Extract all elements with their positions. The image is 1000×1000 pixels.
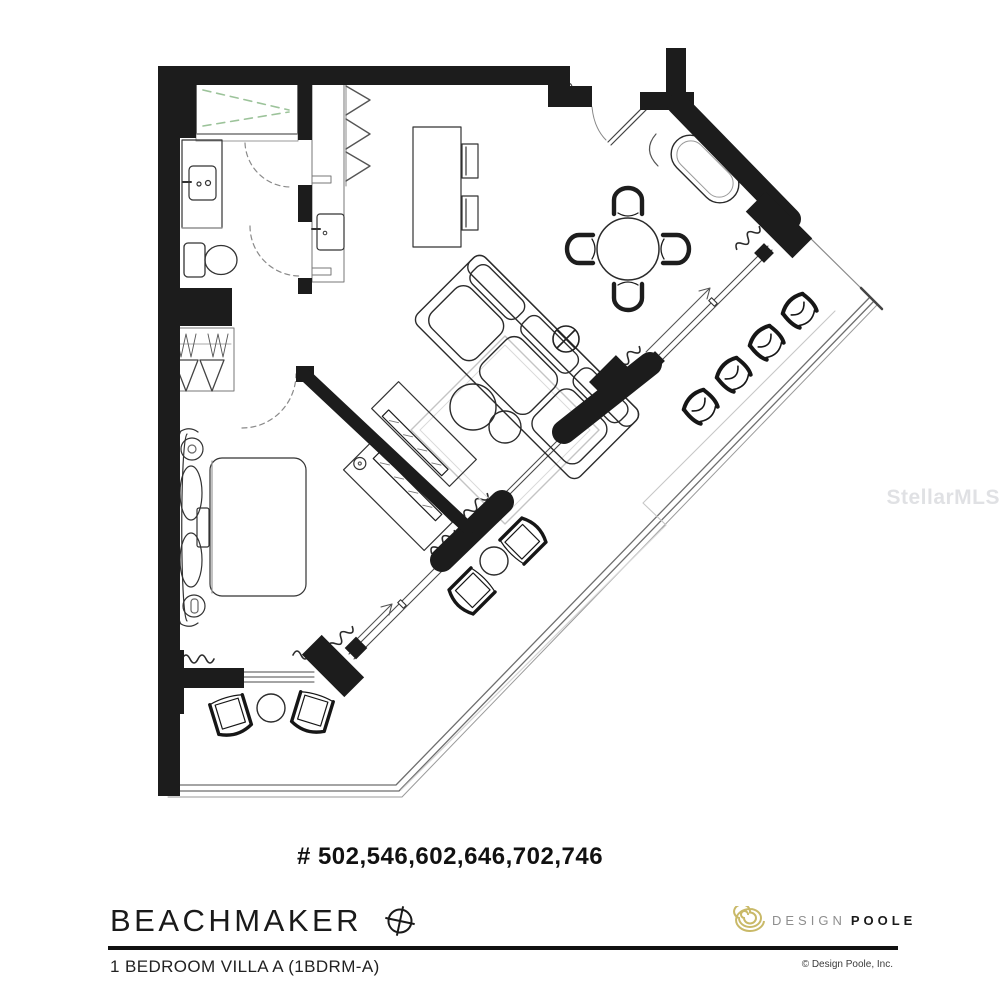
copyright-text: © Design Poole, Inc. xyxy=(802,959,893,970)
north-arrow-icon xyxy=(382,903,418,939)
door-swing-arcs xyxy=(242,143,300,428)
lower-balcony-seating xyxy=(209,690,334,739)
unit-type-label: 1 BEDROOM VILLA A (1BDRM-A) xyxy=(110,957,380,977)
designpoole-logo: DESIGNPOOLE xyxy=(733,906,916,934)
kitchen-island xyxy=(413,127,478,247)
ceiling-light-symbol xyxy=(553,326,579,352)
logo-text-poole: POOLE xyxy=(851,913,917,928)
floor-plan-sheet: # 502,546,602,646,702,746 BEACHMAKER 1 B… xyxy=(0,0,1000,1000)
bench-throw-line xyxy=(649,134,658,166)
unit-numbers: # 502,546,602,646,702,746 xyxy=(250,843,650,871)
dining-set xyxy=(567,188,689,310)
logo-text-design: DESIGN xyxy=(772,913,846,928)
balcony-railing xyxy=(168,227,882,797)
balcony-lounge-chairs xyxy=(680,290,820,427)
toilet xyxy=(184,243,237,277)
building-name: BEACHMAKER xyxy=(110,903,362,939)
shower xyxy=(196,80,298,141)
kitchen-counter xyxy=(312,83,344,282)
diagonal-walls xyxy=(304,104,790,560)
bed xyxy=(175,429,306,627)
pantry-folding-doors xyxy=(346,84,370,186)
stellar-mls-watermark: StellarMLS xyxy=(886,486,1000,510)
vanity-sink xyxy=(182,140,222,228)
title-divider xyxy=(108,946,898,950)
title-row: BEACHMAKER xyxy=(110,903,418,939)
designpoole-spiral-icon xyxy=(733,906,767,934)
